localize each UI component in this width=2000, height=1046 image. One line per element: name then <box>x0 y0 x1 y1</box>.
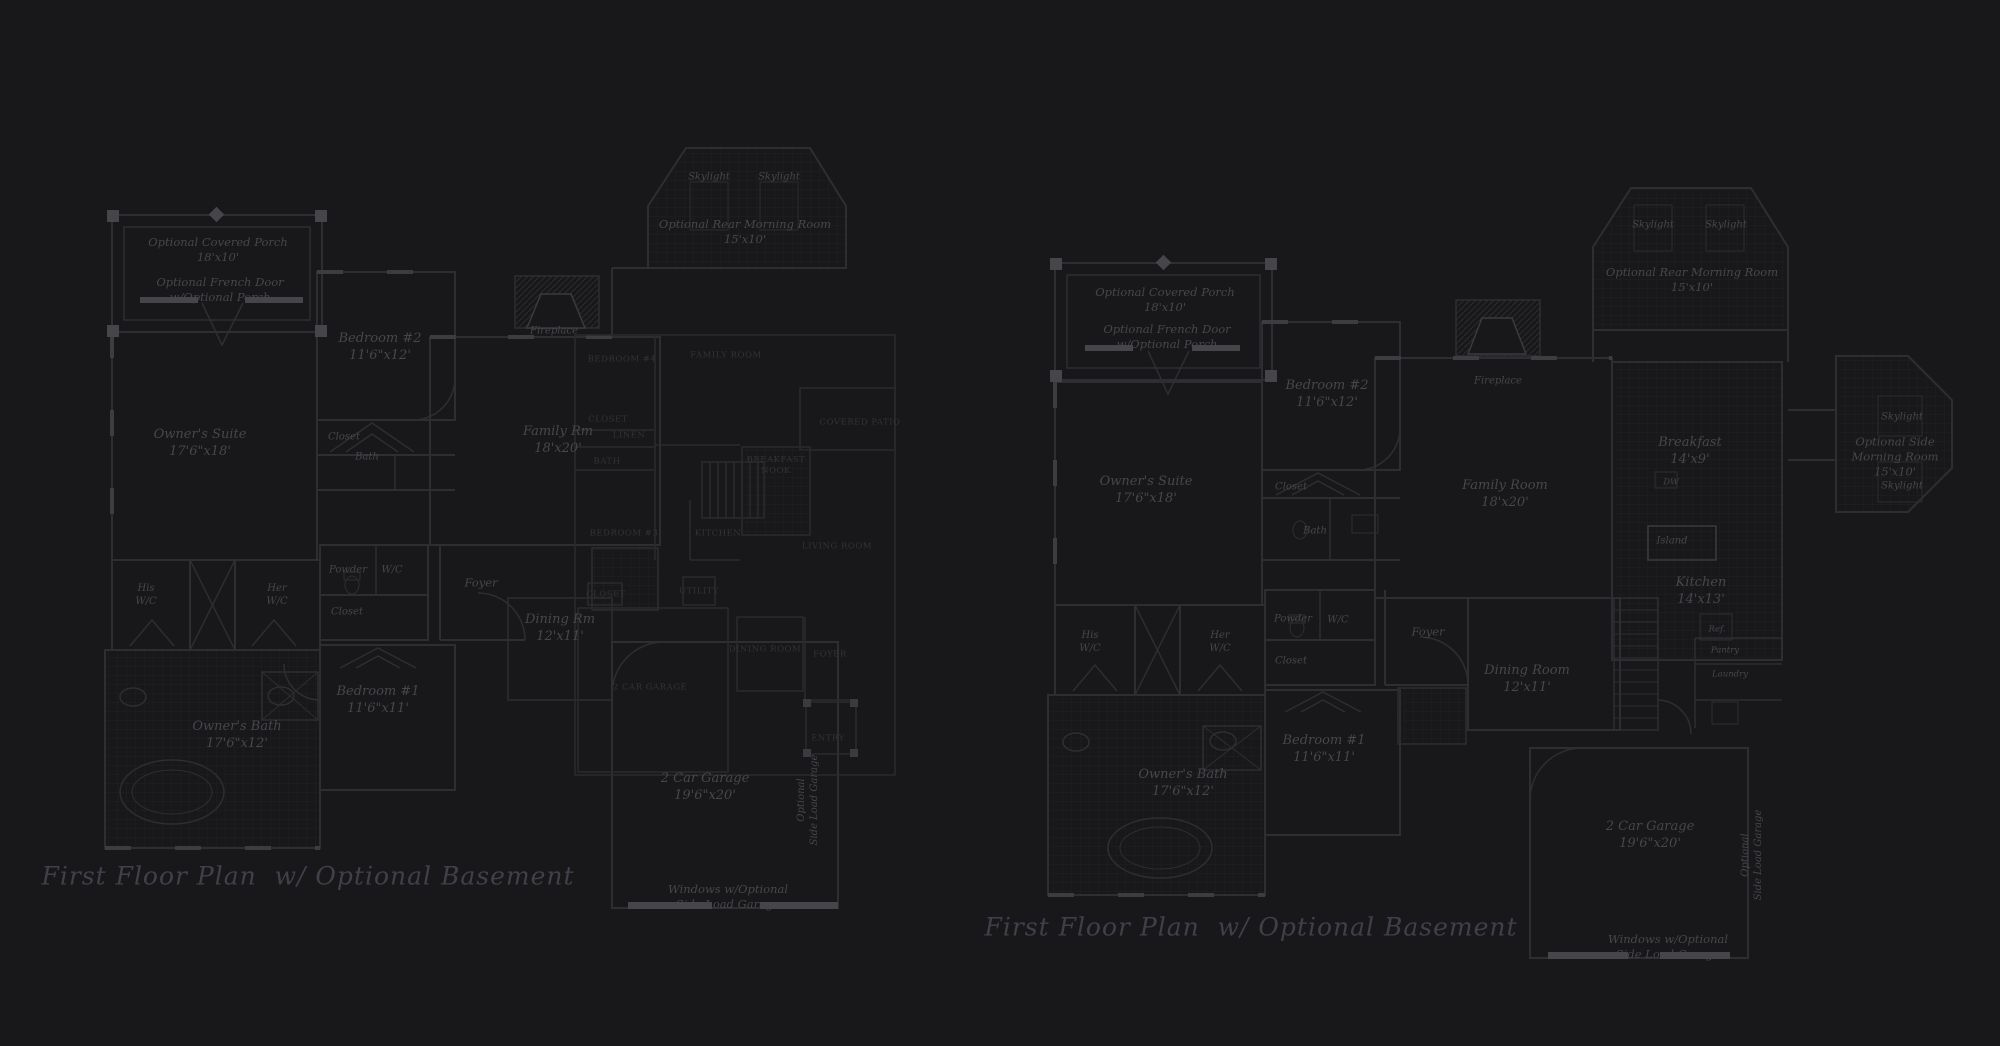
left-plan-walls <box>105 148 846 908</box>
left-plan-title: First Floor Plan w/ Optional Basement <box>41 862 574 891</box>
right-plan-walls <box>1048 188 1952 958</box>
blueprint-canvas: First Floor Plan w/ Optional Basement Fi… <box>0 0 2000 1046</box>
right-plan-title: First Floor Plan w/ Optional Basement <box>984 913 1517 942</box>
